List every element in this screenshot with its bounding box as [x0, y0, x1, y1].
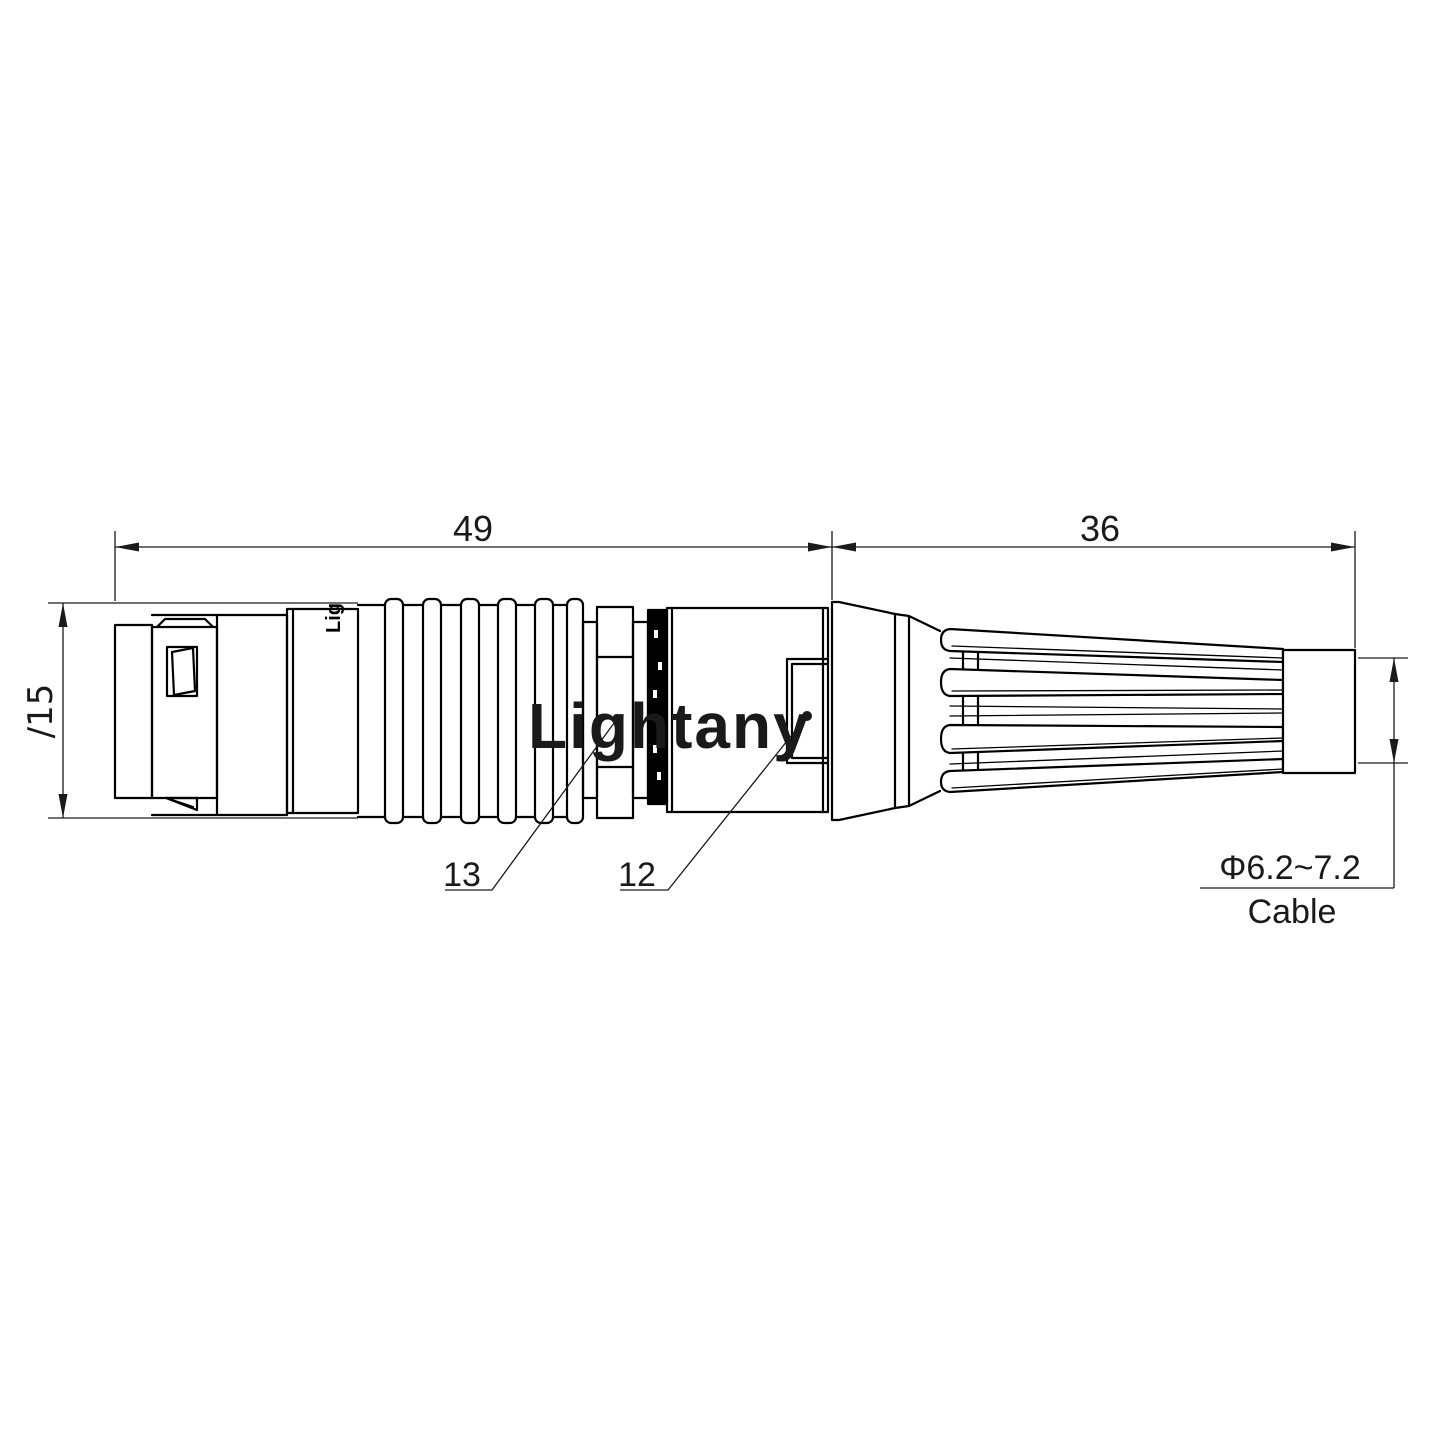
arrow-cable-bottom	[1390, 739, 1399, 763]
barrel-silhouette-lines	[152, 615, 217, 815]
dim-49-label: 49	[453, 508, 493, 549]
arrow-36-right	[1331, 543, 1355, 552]
cable-diameter-label: Φ6.2~7.2	[1219, 849, 1361, 887]
extension-lines-top	[115, 531, 1355, 648]
shell-print-text: Lig	[323, 603, 345, 633]
grip-rib	[423, 599, 441, 823]
boot-fin	[941, 725, 1283, 753]
arrow-dia15-bottom	[59, 794, 68, 818]
bayonet-shell	[152, 619, 217, 810]
boot-fins	[941, 629, 1283, 792]
boot-fin	[941, 629, 1283, 662]
grip-rib	[461, 599, 479, 823]
technical-drawing-page: Lig 49 36 ∕15 Φ6.2~7.2 Cable 13 12	[0, 0, 1440, 1440]
boot-fin	[941, 669, 1283, 696]
bayonet-slot-bump	[157, 619, 213, 627]
cable-label: Cable	[1248, 893, 1337, 931]
boot-fin	[941, 759, 1283, 792]
barrel	[217, 615, 287, 815]
arrow-dia15-top	[59, 603, 68, 627]
connector-technical-drawing: Lig 49 36 ∕15 Φ6.2~7.2 Cable 13 12	[0, 0, 1440, 1440]
boot-shoulder	[832, 602, 895, 820]
strain-relief-boot	[832, 602, 1283, 820]
front-plate	[115, 625, 152, 798]
dim-diameter-label: ∕15	[21, 684, 61, 739]
callout-12-label: 12	[618, 856, 656, 894]
cable-ferrule	[1283, 650, 1355, 773]
grip-rib	[385, 599, 403, 823]
diameter-dimension-lines	[48, 603, 358, 818]
boot-ring	[895, 614, 940, 808]
dim-36-label: 36	[1080, 508, 1120, 549]
shell-marking: Lig	[323, 603, 345, 633]
callout-13-label: 13	[443, 856, 481, 894]
arrow-49-right	[808, 543, 832, 552]
arrow-36-left	[832, 543, 856, 552]
grip-rib	[498, 599, 516, 823]
bayonet-pin-tab	[166, 798, 197, 810]
latch-window-inner	[172, 648, 195, 695]
collar	[287, 609, 358, 813]
arrow-cable-top	[1390, 658, 1399, 682]
watermark-text: Lightany	[528, 690, 811, 762]
arrow-49-left	[115, 543, 139, 552]
